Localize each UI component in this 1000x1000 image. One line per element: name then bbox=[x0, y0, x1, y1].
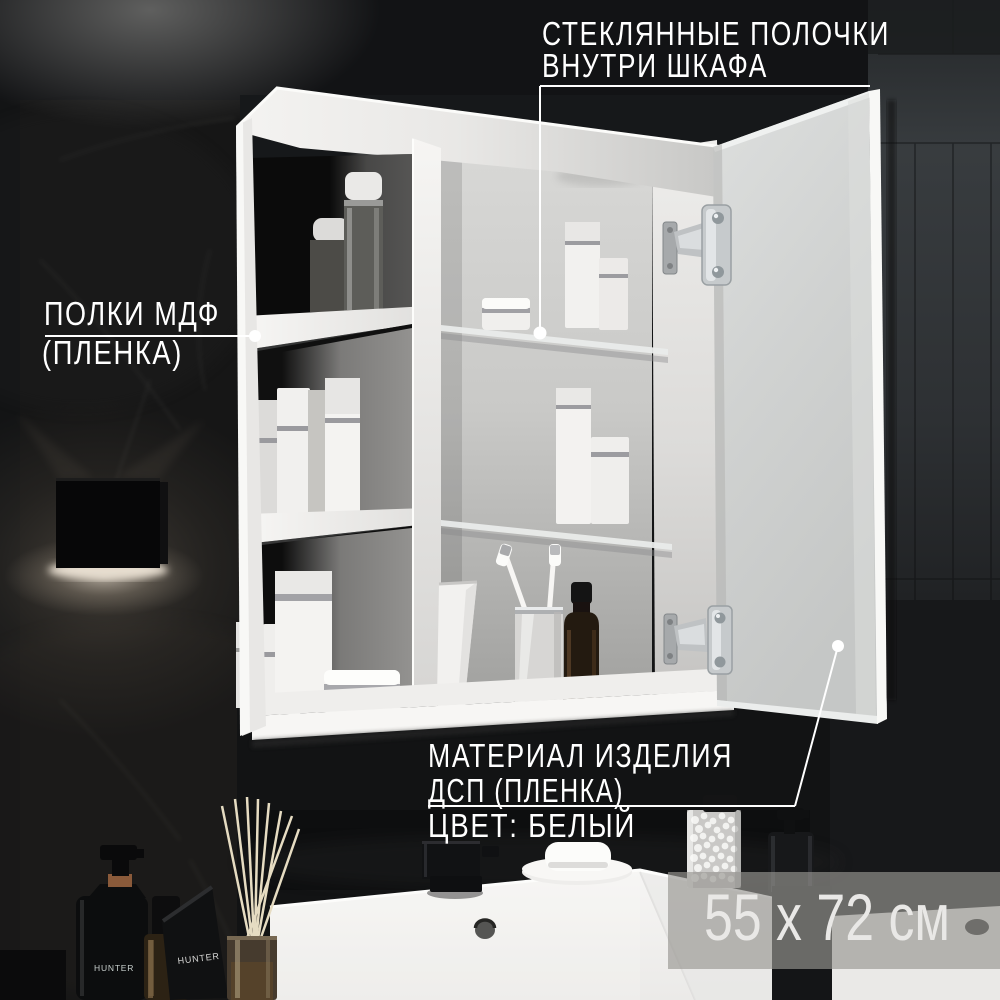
svg-text:МАТЕРИАЛ ИЗДЕЛИЯ: МАТЕРИАЛ ИЗДЕЛИЯ bbox=[428, 737, 733, 774]
svg-text:ДСП (ПЛЕНКА): ДСП (ПЛЕНКА) bbox=[428, 772, 624, 809]
svg-text:ЦВЕТ: БЕЛЫЙ: ЦВЕТ: БЕЛЫЙ bbox=[428, 807, 636, 844]
svg-text:(ПЛЕНКА): (ПЛЕНКА) bbox=[42, 334, 183, 371]
svg-text:ПОЛКИ МДФ: ПОЛКИ МДФ bbox=[44, 295, 220, 332]
svg-text:ВНУТРИ ШКАФА: ВНУТРИ ШКАФА bbox=[542, 47, 768, 84]
svg-text:55 х 72 см: 55 х 72 см bbox=[704, 880, 950, 954]
svg-text:HUNTER: HUNTER bbox=[94, 963, 134, 973]
